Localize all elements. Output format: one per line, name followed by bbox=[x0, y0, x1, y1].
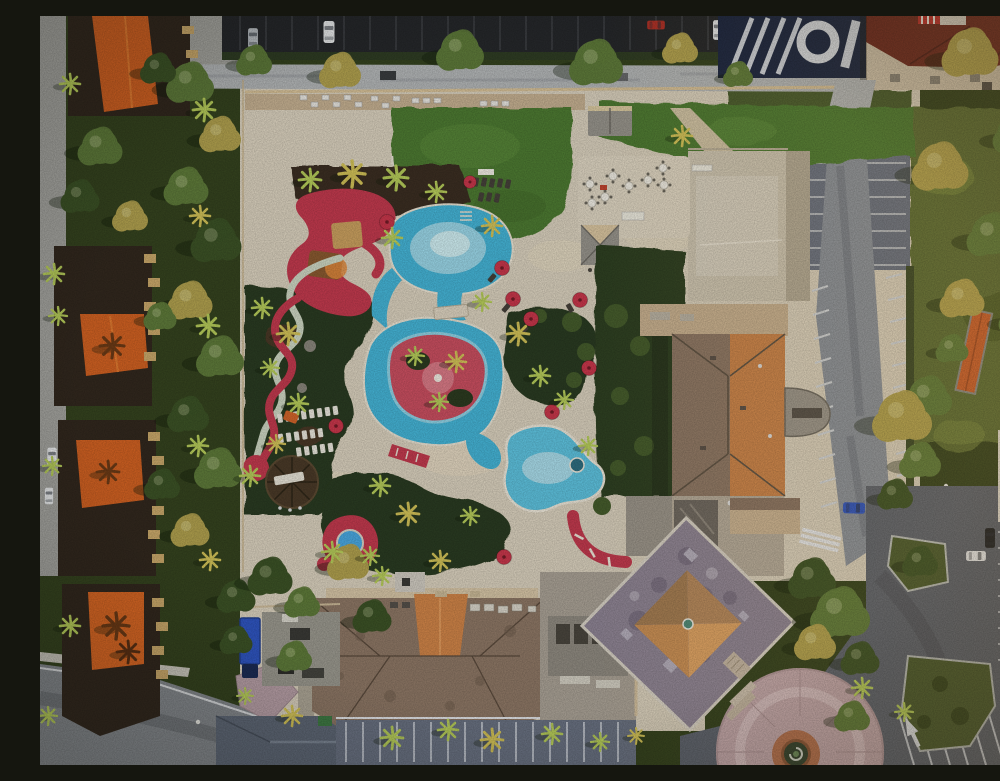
vignette bbox=[40, 16, 1000, 765]
aerial-resort-photo: Aerial top-down view of a resort water-p… bbox=[40, 16, 1000, 765]
